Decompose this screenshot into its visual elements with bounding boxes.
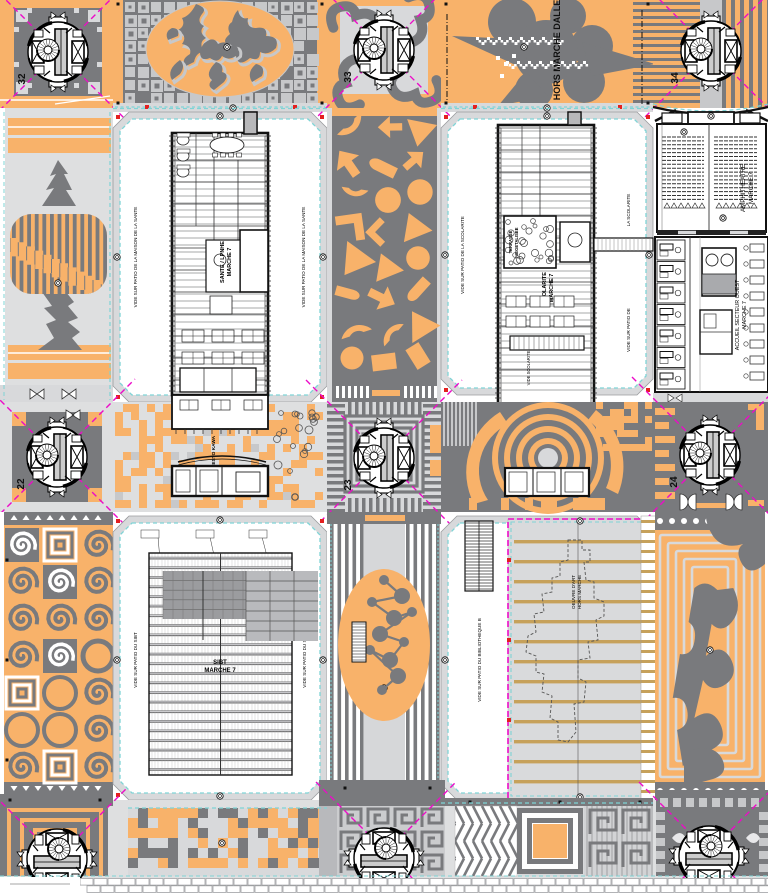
svg-text:ACCUEIL SECTEUR OUEST: ACCUEIL SECTEUR OUEST [735,279,741,350]
svg-text:LA SCOLARITE: LA SCOLARITE [626,194,631,227]
svg-text:OEUVRE D'ART: OEUVRE D'ART [571,575,576,609]
svg-text:MARCHE 7: MARCHE 7 [748,171,755,204]
svg-text:TERRASSE: TERRASSE [508,230,513,253]
svg-text:23: 23 [343,479,354,491]
svg-text:VIDE SCOLARITE: VIDE SCOLARITE [526,350,531,385]
svg-text:24: 24 [669,476,680,488]
svg-text:SIBT: SIBT [213,660,227,666]
svg-text:33: 33 [343,71,354,83]
svg-text:22: 22 [16,478,27,490]
svg-text:MARCHE 7: MARCHE 7 [204,668,236,674]
svg-text:34: 34 [670,72,681,84]
svg-text:MARCHE 7: MARCHE 7 [227,248,233,277]
svg-text:HORS MARCHE DALLE: HORS MARCHE DALLE [552,0,562,100]
svg-text:SANTE / LPNHE: SANTE / LPNHE [220,241,226,283]
svg-text:32: 32 [17,73,28,85]
svg-text:VIDE SUR PATIO DU SIBT: VIDE SUR PATIO DU SIBT [133,632,138,688]
svg-text:MARCHE 7: MARCHE 7 [742,301,748,329]
svg-text:VIDE SUR PATIO DE LA MAISON DE: VIDE SUR PATIO DE LA MAISON DE LA SANTE [133,207,138,308]
svg-text:VEGETALISEE: VEGETALISEE [514,227,519,256]
svg-text:VIDE SUR PATIO DE: VIDE SUR PATIO DE [626,308,631,352]
svg-text:VIDE SUR PATIO DE LA SCOLARITE: VIDE SUR PATIO DE LA SCOLARITE [460,216,465,294]
svg-text:VIDE SUR PATIO DU BIBLIOTHEQUE: VIDE SUR PATIO DU BIBLIOTHEQUE B [477,618,482,702]
svg-text:VIDE SUR PATIO DE LA MAISON DE: VIDE SUR PATIO DE LA MAISON DE LA SANTE [301,207,306,308]
svg-text:HORS MARCHE: HORS MARCHE [577,575,582,609]
svg-text:RESTO KAWA: RESTO KAWA [211,435,217,468]
svg-text:AMPHITHEATRE: AMPHITHEATRE [740,164,747,212]
